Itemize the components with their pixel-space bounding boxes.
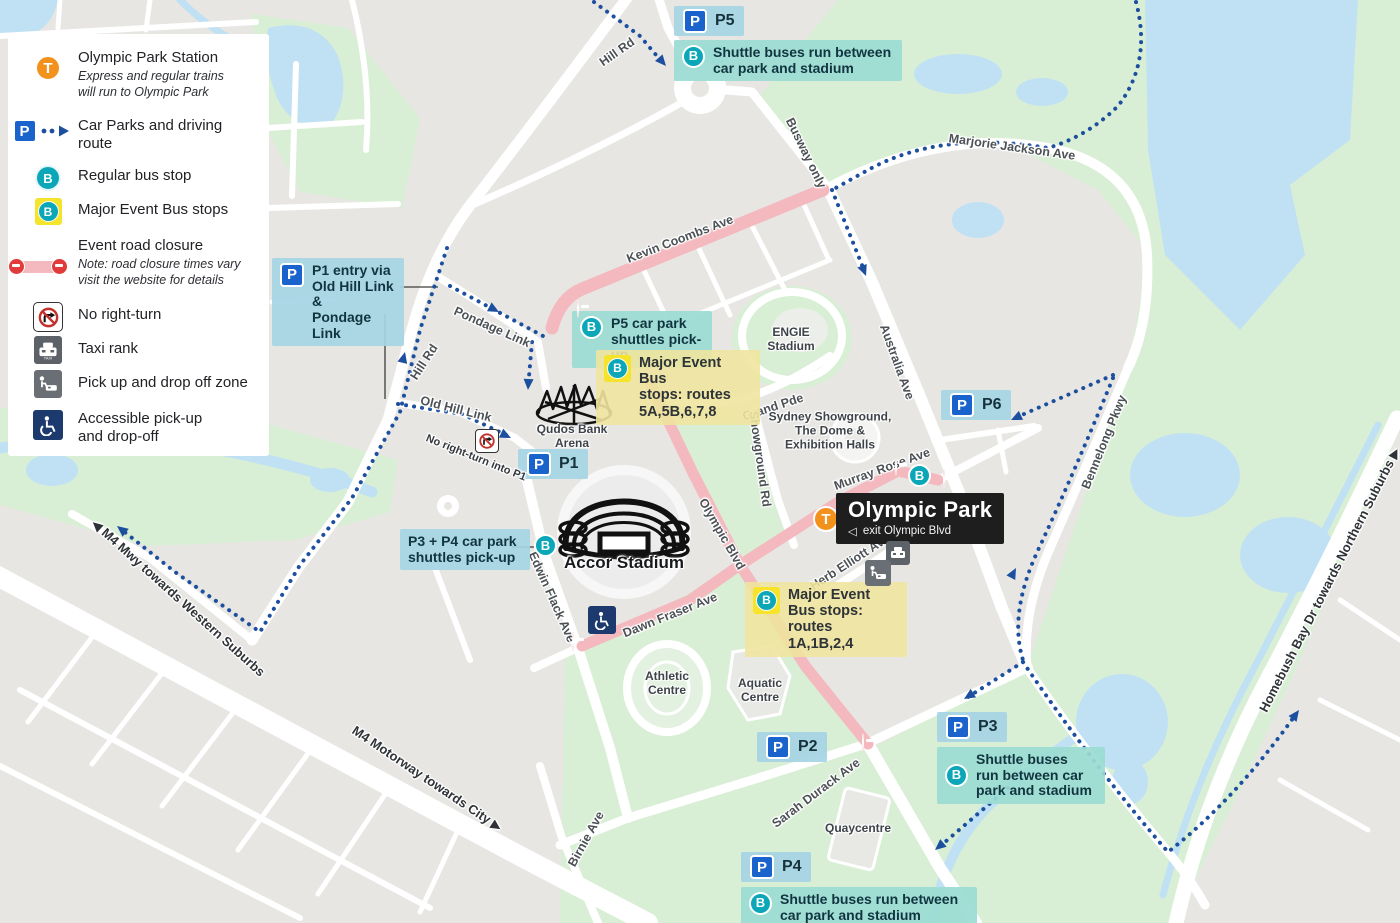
carpark-badge-p5: P P5 bbox=[674, 6, 744, 36]
place-label-quaycentre: Quaycentre bbox=[825, 822, 891, 836]
parking-icon: P bbox=[280, 263, 304, 287]
place-label-engie-stadium: ENGIE Stadium bbox=[767, 326, 814, 354]
callout-p1-entry: P P1 entry via Old Hill Link & Pondage L… bbox=[272, 258, 404, 346]
parking-icon: P bbox=[13, 119, 37, 143]
carpark-badge-p3: P P3 bbox=[937, 712, 1007, 742]
road-closure-icon bbox=[895, 457, 897, 476]
svg-text:TAXI: TAXI bbox=[44, 356, 52, 361]
place-label-aquatic-centre: Aquatic Centre bbox=[738, 677, 782, 705]
place-label-qudos-arena: Qudos Bank Arena bbox=[537, 423, 608, 451]
major-event-bus-icon: B bbox=[753, 587, 780, 614]
road-closure-icon bbox=[572, 632, 574, 651]
road-closure-icon bbox=[577, 299, 579, 318]
place-label-showground: Sydney Showground, The Dome & Exhibition… bbox=[769, 410, 892, 451]
bus-stop-icon-murray-rose: B bbox=[908, 464, 931, 487]
callout-p34-pickup: P3 + P4 car park shuttles pick-up bbox=[400, 529, 530, 570]
callout-major-event-south: B Major Event Bus stops: routes 1A,1B,2,… bbox=[745, 582, 907, 657]
bus-stop-icon: B bbox=[35, 165, 61, 191]
callout-p3-shuttle: B Shuttle buses run between car park and… bbox=[937, 747, 1105, 804]
parking-icon: P bbox=[750, 855, 774, 879]
map-canvas[interactable]: Hill Rd Hill Rd Pondage Link Old Hill Li… bbox=[0, 0, 1400, 923]
place-label-athletic-centre: Athletic Centre bbox=[645, 670, 689, 698]
station-exit-text: exit Olympic Blvd bbox=[863, 525, 951, 537]
train-station-icon: T bbox=[35, 55, 61, 81]
no-right-turn-icon bbox=[475, 429, 499, 453]
no-right-turn-icon bbox=[33, 302, 63, 332]
parking-icon: P bbox=[683, 9, 707, 33]
callout-p4-shuttle: B Shuttle buses run between car park and… bbox=[741, 887, 977, 923]
taxi-rank-icon: TAXI bbox=[34, 336, 62, 364]
station-label-olympic-park: Olympic Park ◁ exit Olympic Blvd bbox=[836, 493, 1004, 544]
major-event-bus-icon: B bbox=[604, 355, 631, 382]
parking-icon: P bbox=[766, 735, 790, 759]
road-closure-icon bbox=[862, 733, 864, 752]
parking-icon: P bbox=[527, 452, 551, 476]
major-event-bus-icon: B bbox=[35, 198, 62, 225]
station-name: Olympic Park bbox=[848, 497, 992, 523]
legend-panel: T Olympic Park Station Express and regul… bbox=[8, 34, 269, 456]
callout-p5-shuttle: B Shuttle buses run between car park and… bbox=[674, 40, 902, 81]
accessible-pickup-icon bbox=[33, 410, 63, 440]
callout-major-event-north: B Major Event Bus stops: routes 5A,5B,6,… bbox=[596, 350, 760, 425]
bus-stop-icon-edwin-flack: B bbox=[534, 534, 557, 557]
road-closure-bar-icon bbox=[14, 261, 62, 273]
carpark-badge-p1: P P1 bbox=[518, 449, 588, 479]
parking-icon: P bbox=[950, 393, 974, 417]
carpark-badge-p4: P P4 bbox=[741, 852, 811, 882]
place-label-accor-stadium: Accor Stadium bbox=[564, 553, 684, 573]
driving-route-icon bbox=[40, 125, 70, 137]
carpark-badge-p2: P P2 bbox=[757, 732, 827, 762]
pickup-dropoff-icon bbox=[34, 370, 62, 398]
carpark-badge-p6: P P6 bbox=[941, 390, 1011, 420]
pickup-dropoff-icon bbox=[865, 560, 891, 586]
bus-stop-icon: B bbox=[580, 316, 603, 339]
bus-stop-icon: B bbox=[945, 764, 968, 787]
exit-arrow-icon: ◁ bbox=[848, 524, 857, 538]
road-closure-icon bbox=[943, 470, 945, 489]
bus-stop-icon: B bbox=[749, 892, 772, 915]
accessible-pickup-icon bbox=[588, 606, 616, 634]
parking-icon: P bbox=[946, 715, 970, 739]
bus-stop-icon: B bbox=[682, 45, 705, 68]
